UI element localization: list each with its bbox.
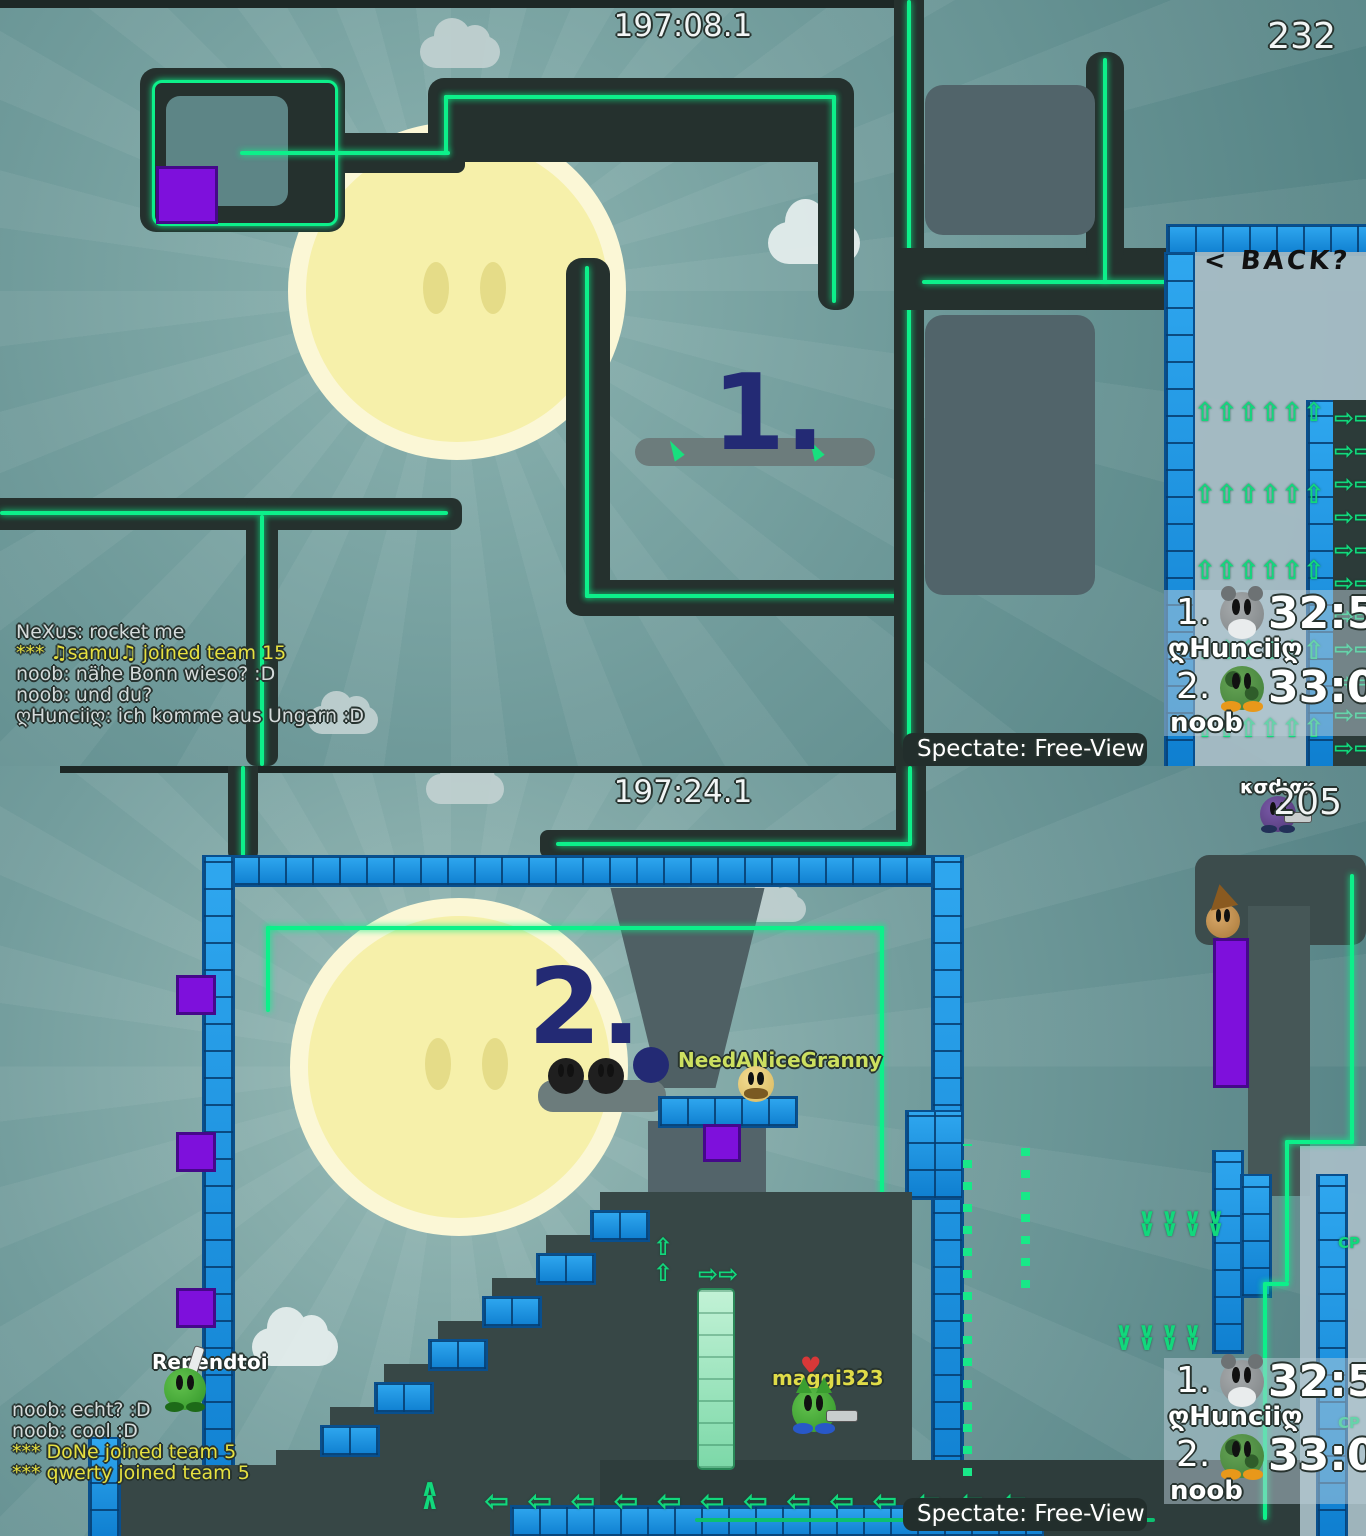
purple-block [703, 1124, 741, 1162]
annotation-step-1: 1. [712, 368, 825, 458]
laser-line [240, 151, 450, 155]
player-name-2: noob [1170, 1476, 1243, 1506]
tune-zone-bar [697, 1288, 735, 1470]
sun-eye-left [425, 1038, 451, 1090]
blue-step [590, 1210, 650, 1242]
score-value: 232 [1267, 16, 1336, 57]
purple-block [176, 1132, 216, 1172]
player-name: NeedANiceGranny [678, 1048, 882, 1072]
up-arrow-icons: ⇧ ⇧ [653, 1234, 673, 1286]
player-name-2: noob [1170, 708, 1243, 738]
avatar [1220, 1434, 1264, 1478]
laser-tube [566, 580, 911, 616]
rank-1: 1. [1176, 1360, 1210, 1401]
map-ceiling [60, 766, 915, 773]
laser-tube [894, 248, 1194, 310]
player-name-1: ღHunciiღ [1168, 1402, 1302, 1432]
laser-line [556, 842, 911, 846]
player-name: Rependtoi [152, 1350, 268, 1374]
best-time-1: 32:58 [1268, 588, 1366, 639]
avatar [1220, 666, 1264, 710]
chat-line: noob: cool :D [12, 1421, 250, 1442]
player-name-1: ღHunciiღ [1168, 634, 1302, 664]
screenshot-1: 1. < BACK? ⇧⇧⇧⇧⇧⇧ ⇧⇧⇧⇧⇧⇧ ⇧⇧⇧⇧⇧⇧ ⇧⇧⇧⇧⇧⇧ ⇧… [0, 0, 1366, 766]
laser-line [444, 95, 448, 155]
sun-eye-right [480, 262, 506, 314]
chat-line: ღHunciiღ: ich komme aus Ungarn :D [16, 706, 364, 727]
avatar [1220, 1360, 1264, 1404]
spectate-label: Spectate: Free-View [917, 1501, 1145, 1527]
map-back-text: < BACK? [1202, 246, 1351, 276]
spectate-label: Spectate: Free-View [917, 736, 1145, 762]
laser-line [907, 0, 911, 745]
up-arrow-icons: ⇧⇧⇧⇧⇧⇧ [1194, 480, 1325, 510]
up-arrow-icons: ⇧⇧⇧⇧⇧⇧ [1194, 556, 1325, 586]
laser-line [832, 95, 836, 303]
laser-line [444, 95, 836, 99]
chat-line-system: *** DoNe joined team 5 [12, 1442, 250, 1463]
chat-line-system: *** qwerty joined team 5 [12, 1463, 250, 1484]
rank-1: 1. [1176, 592, 1210, 633]
leaderboard: 1. 32:58 ღHunciiღ 2. 33:01 noob [1164, 590, 1366, 736]
blue-step [482, 1296, 542, 1328]
blue-step [536, 1253, 596, 1285]
up-arrow-icons: ⇧⇧⇧⇧⇧⇧ [1194, 398, 1325, 428]
spectate-bar[interactable]: Spectate: Free-View [903, 1498, 1147, 1531]
laser-line [922, 280, 1170, 284]
best-time-2: 33:01 [1268, 1430, 1366, 1481]
laser-tube [428, 78, 853, 162]
teeworlds-double-screenshot: 1. < BACK? ⇧⇧⇧⇧⇧⇧ ⇧⇧⇧⇧⇧⇧ ⇧⇧⇧⇧⇧⇧ ⇧⇧⇧⇧⇧⇧ ⇧… [0, 0, 1366, 1536]
chat-box: noob: echt? :D noob: cool :D *** DoNe jo… [12, 1400, 250, 1484]
laser-line [266, 926, 884, 930]
laser-line [1350, 874, 1354, 1144]
sun [306, 140, 608, 442]
spectate-bar[interactable]: Spectate: Free-View [903, 733, 1147, 766]
laser-line [1285, 1140, 1289, 1282]
annotation-dot [633, 1047, 669, 1083]
gray-block [925, 315, 1095, 595]
chat-line: noob: und du? [16, 685, 364, 706]
laser-line [266, 926, 270, 1012]
laser-line [1103, 58, 1107, 282]
laser-line [1285, 1140, 1354, 1144]
blue-block-row [202, 855, 964, 887]
best-time-1: 32:58 [1268, 1356, 1366, 1407]
laser-line [585, 266, 589, 598]
down-chevron-icons: ∨∨∨∨ ∨∨∨∨ [1115, 1326, 1206, 1350]
map-ceiling [0, 0, 905, 8]
dark-terrain [276, 1450, 332, 1536]
blue-step [374, 1382, 434, 1414]
purple-block [156, 166, 218, 224]
rank-2: 2. [1176, 1434, 1210, 1475]
race-timer: 197:24.1 [0, 774, 1366, 810]
cp-label: CP [1338, 1234, 1360, 1252]
chat-line: NeXus: rocket me [16, 622, 364, 643]
rank-2: 2. [1176, 666, 1210, 707]
right-arrow-icons: ⇨⇨ [698, 1260, 738, 1288]
sun-eye-right [482, 1038, 508, 1090]
chat-line-system: *** ♫samu♫ joined team 15 [16, 643, 364, 664]
blue-block-column [1240, 1174, 1272, 1298]
annotation-step-2: 2. [528, 962, 641, 1052]
best-time-2: 33:01 [1268, 662, 1366, 713]
player-tee-granny [738, 1066, 774, 1102]
up-chevron-icon: ∧ ∧ [420, 1482, 440, 1508]
gun-icon [826, 1410, 858, 1422]
chat-line: noob: echt? :D [12, 1400, 250, 1421]
avatar [1220, 592, 1264, 636]
dotted-tile-column [963, 1144, 972, 1476]
laser-line [0, 511, 448, 515]
blue-step [320, 1425, 380, 1457]
purple-block [176, 1288, 216, 1328]
chat-line: noob: nähe Bonn wieso? :D [16, 664, 364, 685]
blue-block-cluster [905, 1110, 964, 1200]
sun-eye-left [423, 262, 449, 314]
laser-line [585, 594, 900, 598]
chat-box: NeXus: rocket me *** ♫samu♫ joined team … [16, 622, 364, 727]
laser-tube [818, 78, 854, 310]
screenshot-2: 2. NeedANiceGranny ⇧ ⇧ ⇨⇨ ⇦⇦⇦⇦⇦⇦⇦⇦⇦⇦⇦⇦⇦ … [0, 766, 1366, 1536]
leaderboard: 1. 32:58 ღHunciiღ 2. 33:01 noob [1164, 1358, 1366, 1504]
race-timer: 197:08.1 [0, 8, 1366, 44]
gray-block [925, 85, 1095, 235]
purple-block [176, 975, 216, 1015]
dotted-tile-column [1021, 1138, 1030, 1288]
purple-block-column [1213, 938, 1249, 1088]
blue-step [428, 1339, 488, 1371]
down-chevron-icons: ∨∨∨∨ ∨∨∨∨ [1138, 1212, 1229, 1236]
